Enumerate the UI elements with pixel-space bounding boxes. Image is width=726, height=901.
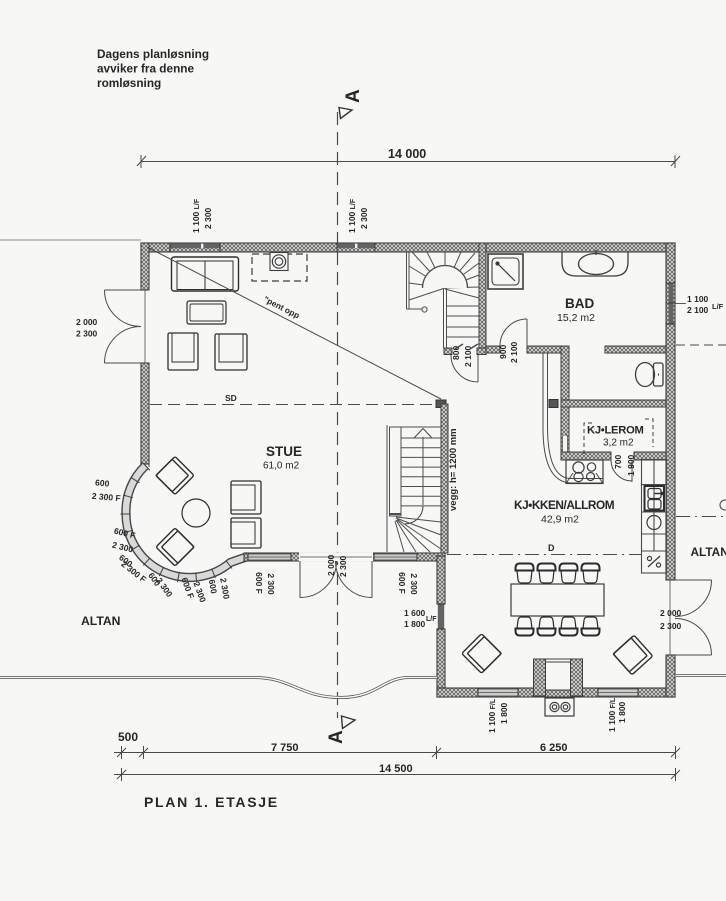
svg-text:700: 700 [613,455,623,469]
svg-text:ALTAN: ALTAN [81,614,120,628]
svg-text:romløsning: romløsning [97,76,161,90]
svg-text:1 900: 1 900 [626,454,636,476]
svg-text:1 800: 1 800 [404,619,426,629]
svg-text:L/F: L/F [426,616,437,623]
svg-text:KJ•LEROM: KJ•LEROM [587,425,644,437]
svg-text:600 F: 600 F [254,572,264,594]
svg-text:avviker fra denne: avviker fra denne [97,62,194,76]
svg-text:A: A [343,89,364,103]
svg-text:2 300: 2 300 [338,555,348,577]
svg-text:14 500: 14 500 [379,763,413,775]
svg-text:7 750: 7 750 [271,742,299,754]
svg-text:vegg: h= 1200 mm: vegg: h= 1200 mm [448,428,459,511]
svg-text:2 300: 2 300 [76,329,98,339]
svg-text:15,2 m2: 15,2 m2 [557,312,595,324]
svg-text:KJ•KKEN/ALLROM: KJ•KKEN/ALLROM [514,498,615,512]
svg-text:2 300: 2 300 [266,573,276,595]
svg-text:A: A [326,730,347,744]
svg-text:2 300: 2 300 [660,621,682,631]
svg-text:600: 600 [95,477,110,488]
svg-text:600 F: 600 F [397,572,407,594]
svg-text:Dagens planløsning: Dagens planløsning [97,47,209,61]
svg-text:D: D [548,543,555,553]
svg-text:61,0 m2: 61,0 m2 [263,461,300,472]
svg-text:2 000: 2 000 [76,317,98,327]
svg-text:STUE: STUE [266,444,302,459]
svg-text:1 800: 1 800 [617,701,627,723]
svg-text:2 300: 2 300 [359,207,369,229]
svg-text:1 800: 1 800 [499,702,509,724]
svg-text:14 000: 14 000 [388,147,426,161]
svg-text:2 100: 2 100 [509,341,519,363]
svg-text:SD: SD [225,393,237,403]
svg-text:500: 500 [118,730,138,744]
svg-text:900: 900 [498,345,508,359]
svg-text:2 300: 2 300 [409,573,419,595]
svg-text:2 100: 2 100 [687,305,709,315]
svg-text:1 100: 1 100 [687,294,709,304]
svg-text:42,9 m2: 42,9 m2 [541,514,579,526]
svg-text:6 250: 6 250 [540,742,568,754]
svg-text:L/F: L/F [712,302,724,311]
svg-text:1 600: 1 600 [404,608,426,618]
svg-text:PLAN 1. ETASJE: PLAN 1. ETASJE [144,794,279,810]
svg-text:3,2 m2: 3,2 m2 [603,438,634,449]
svg-text:2 000: 2 000 [326,554,336,576]
svg-text:2 000: 2 000 [660,608,682,618]
svg-text:2 300: 2 300 [203,207,213,229]
svg-text:ALTAN: ALTAN [691,545,726,559]
svg-text:BAD: BAD [565,296,594,311]
